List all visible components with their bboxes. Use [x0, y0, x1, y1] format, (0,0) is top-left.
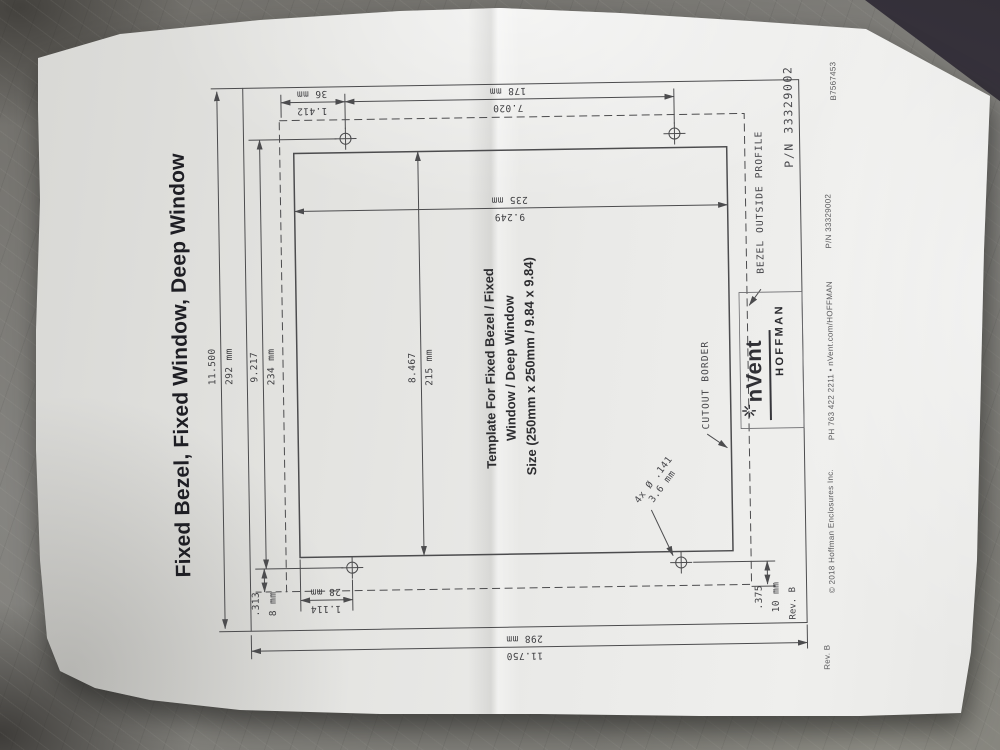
dim-inches: 1.114 [297, 604, 355, 614]
template-note-line3: Size (250mm x 250mm / 9.84 x 9.84) [519, 260, 542, 475]
dim-hole-span-height: 9.217 234 mm [250, 338, 277, 396]
dim-inches: 11.500 [208, 338, 218, 396]
template-note-line1: Template For Fixed Bezel / Fixed [479, 261, 502, 476]
dim-mm: 235 mm [480, 195, 538, 205]
dim-bottom-left-offset: .313 8 mm [251, 575, 278, 633]
nvent-hoffman-logo: nVent HOFFMAN [740, 294, 800, 425]
dim-inches: .375 [754, 568, 764, 626]
photo-scene: Fixed Bezel, Fixed Window, Deep Window 1… [0, 0, 1000, 750]
margin-part-number: P/N 33329002 [823, 186, 834, 256]
nvent-wordmark: nVent [741, 330, 772, 421]
dim-inches: 7.020 [479, 103, 537, 113]
margin-doc-number: B7567453 [828, 50, 839, 112]
dim-inches: .313 [251, 575, 261, 633]
dim-overall-height: 11.500 292 mm [208, 337, 235, 395]
dim-inches: 8.467 [408, 339, 418, 397]
margin-revision: Rev. B [822, 640, 833, 674]
margin-copyright: © 2018 Hoffman Enclosures Inc. [826, 469, 838, 593]
leader-holes [651, 510, 673, 556]
nvent-brand-text: nVent [741, 340, 767, 403]
cutout-border-label: CUTOUT BORDER [700, 335, 714, 435]
part-number: P/N 33329002 [780, 68, 796, 168]
dim-overall-width: 11.750 298 mm [495, 634, 553, 661]
paper-sheet-wrap: Fixed Bezel, Fixed Window, Deep Window 1… [0, 0, 1000, 750]
dim-cutout-width: 9.249 235 mm [480, 195, 538, 222]
dim-inches: 9.249 [481, 212, 539, 222]
dim-hole-span-width: 7.020 178 mm [479, 86, 537, 113]
dim-mm: 298 mm [495, 634, 553, 644]
dim-mm: 10 mm [771, 568, 781, 626]
paper-sheet: Fixed Bezel, Fixed Window, Deep Window 1… [0, 0, 1000, 750]
dim-mm: 292 mm [225, 337, 235, 395]
dim-mm: 36 mm [283, 89, 341, 99]
dim-hole-edge-offset: 1.114 28 mm [297, 587, 355, 614]
dim-mm: 28 mm [297, 587, 355, 597]
dim-mm: 234 mm [267, 338, 277, 396]
dim-mm: 8 mm [268, 575, 278, 633]
dim-bottom-right-offset: .375 10 mm [754, 568, 781, 626]
dim-mm: 178 mm [479, 86, 537, 96]
revision-label: Rev. B [788, 583, 800, 623]
dim-cutout-height: 8.467 215 mm [408, 338, 435, 396]
dim-inches: 11.750 [496, 651, 554, 661]
dim-mm: 215 mm [425, 338, 435, 396]
dim-inches: 1.412 [283, 106, 341, 116]
dim-inches: 9.217 [250, 338, 260, 396]
template-drawing: Fixed Bezel, Fixed Window, Deep Window 1… [0, 0, 1000, 750]
leader-cutout-border [707, 434, 727, 448]
dim-corner-offset: 1.412 36 mm [283, 89, 341, 116]
nvent-spark-icon [742, 403, 762, 418]
template-note: Template For Fixed Bezel / Fixed Window … [479, 260, 546, 476]
hoffman-brand-text: HOFFMAN [773, 294, 786, 376]
